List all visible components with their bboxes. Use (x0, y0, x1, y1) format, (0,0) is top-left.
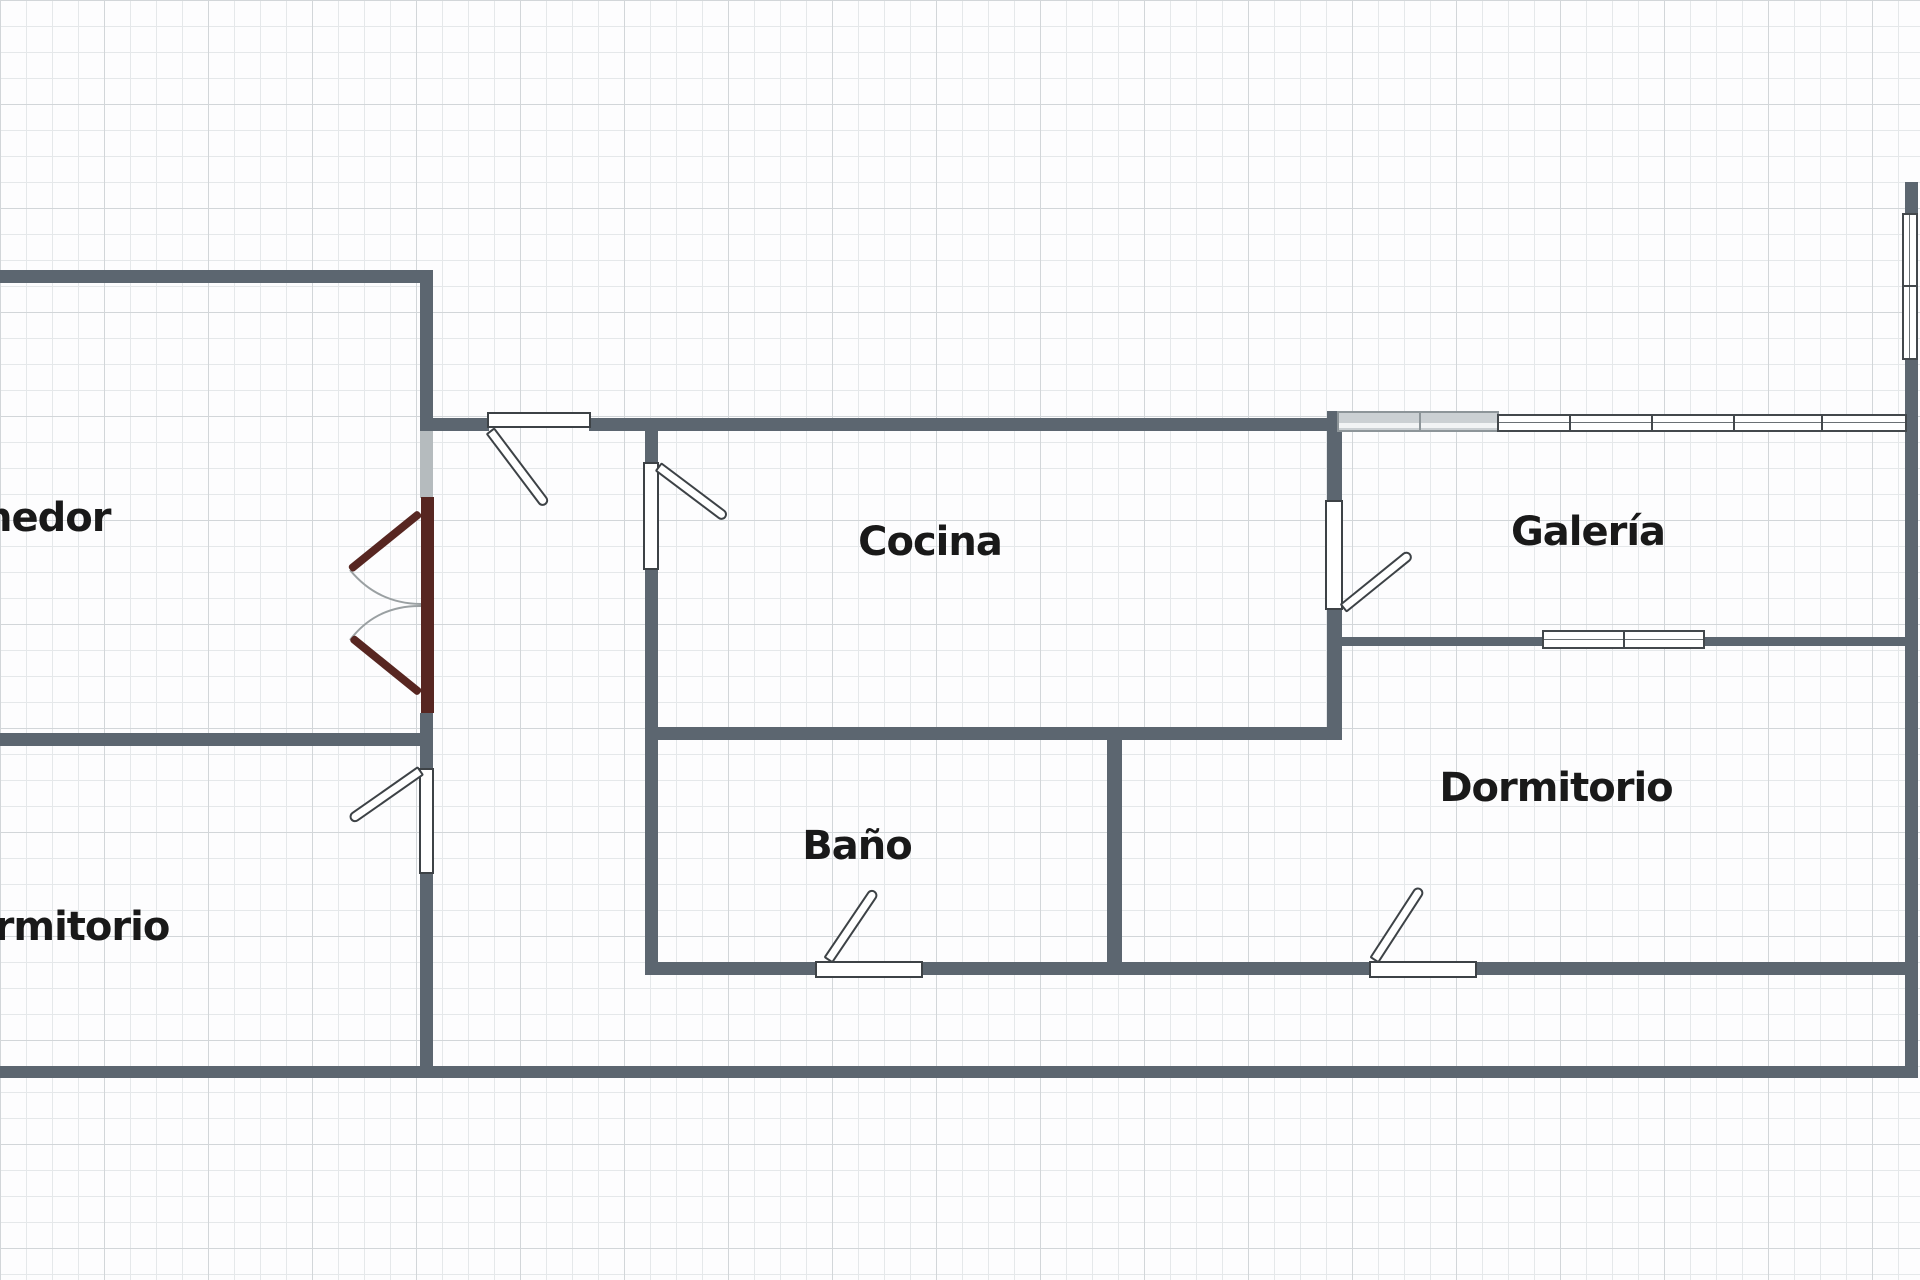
room-label-bano: Baño (802, 824, 911, 868)
floor-plan: Comedor Cocina Galería Dormitorio Baño D… (0, 0, 1920, 1280)
room-label-dormitorio-izquierda: Dormitorio (0, 905, 169, 949)
room-label-cocina: Cocina (858, 520, 1002, 564)
room-label-galeria: Galería (1511, 510, 1665, 554)
room-label-dormitorio-derecha: Dormitorio (1439, 766, 1672, 810)
room-label-comedor: Comedor (0, 496, 110, 540)
double-door-swing-arcs (0, 0, 1920, 1280)
